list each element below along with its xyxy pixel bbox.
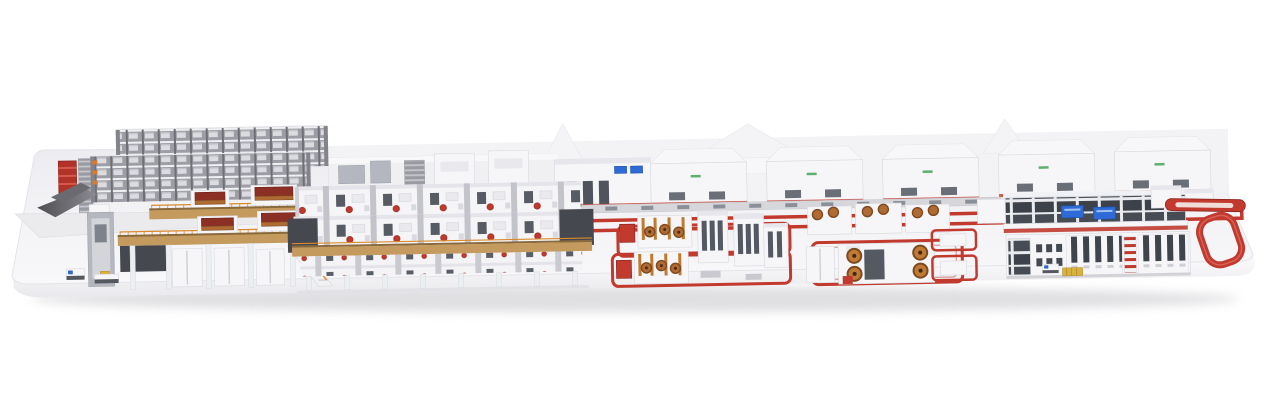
under-deck-cabinets: [172, 247, 285, 287]
red-slide-conveyor: [1165, 199, 1245, 212]
enclosure-unit: [882, 143, 979, 202]
roller-unit: [191, 190, 229, 209]
tall-window-cabinets: [1138, 233, 1189, 274]
agv-light-icon: [68, 271, 72, 274]
enclosure-unit: [766, 146, 863, 205]
agv-shuttle: [1042, 264, 1058, 273]
brand-mark-icon: [691, 175, 701, 178]
red-striped-module: [1124, 236, 1137, 272]
pallet-station: [1063, 268, 1083, 276]
pallet-icon: [746, 274, 762, 280]
hmi-screen-icon: [614, 166, 626, 173]
roller-unit: [197, 216, 237, 235]
display-screen-icon: [1061, 205, 1083, 217]
hmi-screen-icon: [630, 166, 642, 173]
production-line: [14, 107, 1247, 300]
tower-machine: [733, 214, 764, 267]
enclosure-unit: [650, 148, 747, 207]
render-canvas: 3D rendered overview of a complete indus…: [0, 0, 1280, 405]
red-cart-icon: [620, 224, 635, 242]
transfer-machine: [977, 199, 1007, 224]
production-line-render: 3D rendered overview of a complete indus…: [0, 0, 1280, 405]
rooftop-unit-icon: [338, 165, 364, 183]
agv-light-icon: [1044, 266, 1048, 269]
enclosure-unit: [998, 139, 1095, 198]
red-cart-icon: [616, 260, 631, 278]
display-screen-icon: [1093, 207, 1115, 219]
agv-shuttle: [66, 269, 84, 280]
dark-panel-wall: [120, 245, 168, 272]
coil-assembly-cell: [838, 242, 935, 284]
winding-machines-back-row: [807, 202, 950, 235]
roller-unit: [251, 185, 297, 206]
rooftop-unit-icon: [370, 161, 390, 183]
upper-deck-modules: [299, 181, 582, 216]
pallet-icon: [701, 270, 721, 277]
tower-machine: [697, 210, 728, 263]
glass-door-cabinet: [1008, 239, 1031, 275]
tower-machine: [764, 223, 789, 267]
red-unit-icon: [843, 276, 853, 284]
